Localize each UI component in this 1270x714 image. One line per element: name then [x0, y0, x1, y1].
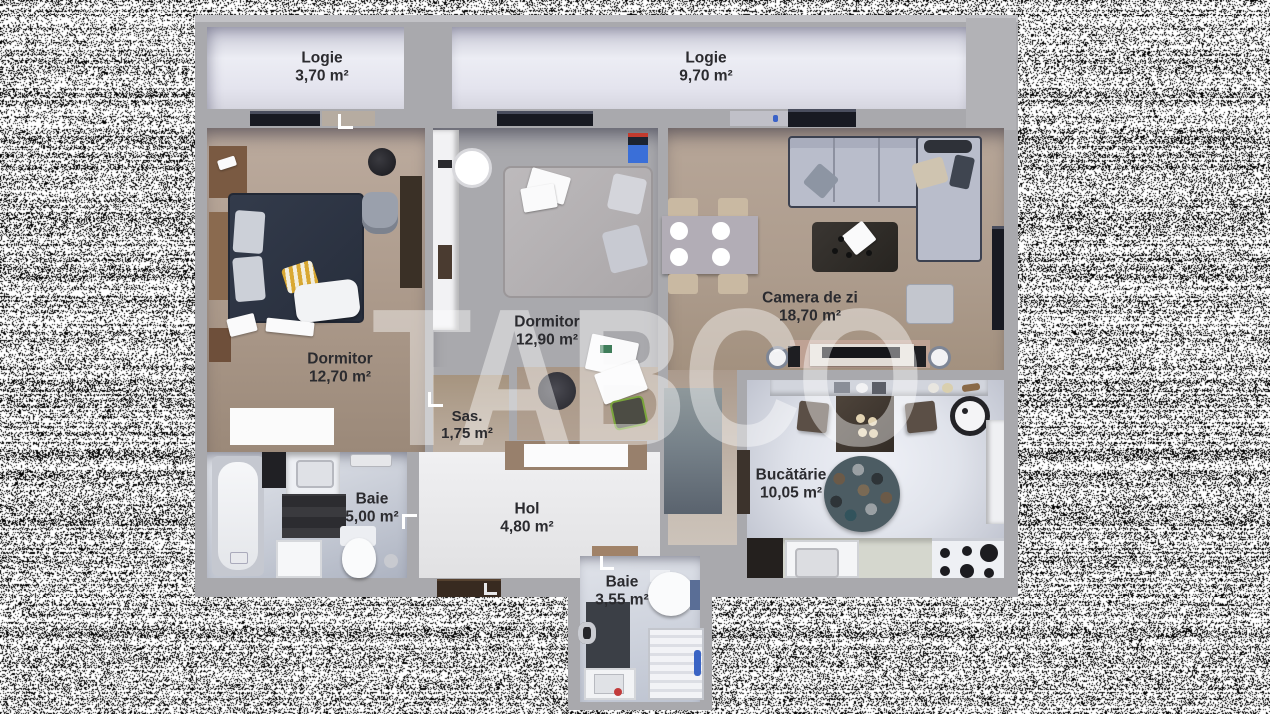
door-swing-icon: [600, 556, 614, 570]
window-camera-right: [992, 226, 1004, 330]
room-label-baie-mica: Baie 3,55 m²: [595, 573, 648, 608]
room-area: 12,90 m²: [514, 331, 579, 349]
mugs: [856, 414, 865, 423]
room-label-camera-de-zi: Camera de zi 18,70 m²: [762, 289, 858, 324]
room-area: 4,80 m²: [500, 518, 553, 536]
room-label-logie-right: Logie 9,70 m²: [679, 49, 732, 84]
bath-accent-item: [614, 688, 622, 696]
top-right-block: [966, 18, 1016, 130]
counter-item: [928, 383, 939, 393]
tall-cabinet: [737, 450, 750, 514]
pillow: [233, 210, 266, 254]
room-label-baie-mare: Baie 5,00 m²: [345, 490, 398, 525]
room-name: Hol: [500, 500, 553, 518]
tile-mat: [282, 494, 346, 538]
room-area: 3,70 m²: [295, 67, 348, 85]
dining-chair: [668, 198, 698, 218]
window-camera-top: [788, 109, 856, 127]
room-area: 3,55 m²: [595, 591, 648, 609]
room-name: Dormitor: [307, 350, 372, 368]
room-area: 10,05 m²: [756, 484, 827, 502]
desk: [209, 146, 247, 198]
window-dormitor-mid: [497, 111, 593, 126]
bathtub-faucet: [230, 552, 248, 564]
stove-burners: [940, 548, 950, 558]
counter-item: [856, 383, 868, 393]
wall-clock: [950, 396, 990, 436]
sofa-main: [788, 136, 930, 208]
door-swing-icon: [338, 114, 353, 129]
room-name: Baie: [345, 490, 398, 508]
wardrobe-item: [438, 245, 452, 279]
tv: [628, 133, 648, 163]
window-dormitor-left: [250, 111, 320, 126]
room-label-sas: Sas. 1,75 m²: [441, 408, 493, 442]
waste-bin: [384, 554, 398, 568]
pouf: [538, 372, 576, 410]
toilet-fixture: [690, 580, 700, 610]
hol-closet-door: [524, 444, 628, 467]
sofa-seam: [878, 138, 880, 202]
vanity-basin: [296, 460, 334, 488]
kitchen-table: [836, 396, 894, 452]
sink-basin: [795, 548, 839, 578]
door-swing-icon: [402, 514, 417, 529]
room-name: Baie: [595, 573, 648, 591]
chair: [362, 192, 398, 234]
sofa-headrest: [924, 140, 972, 153]
shower-glass-panel: [262, 452, 286, 488]
room-label-bucatarie: Bucătărie 10,05 m²: [756, 466, 827, 501]
room-name: Camera de zi: [762, 289, 858, 307]
cups: [832, 248, 838, 254]
room-name: Sas.: [441, 408, 493, 425]
speaker: [928, 346, 951, 369]
towel-rail: [350, 454, 392, 467]
white-rug: [230, 408, 334, 445]
round-fixture: [578, 622, 596, 644]
dining-chair: [718, 198, 748, 218]
room-area: 18,70 m²: [762, 307, 858, 325]
magazine-detail: [600, 345, 612, 353]
pillow: [232, 256, 266, 302]
round-mosaic-rug: [824, 456, 900, 532]
shelf-unit: [209, 328, 231, 362]
right-cabinet: [986, 420, 1004, 524]
top-wall-face: [195, 15, 1018, 22]
kitchen-chair: [797, 401, 830, 434]
room-area: 9,70 m²: [679, 67, 732, 85]
room-name: Logie: [679, 49, 732, 67]
tv-screen: [822, 347, 900, 358]
kitchen-chair: [905, 401, 938, 434]
side-desk: [400, 176, 422, 288]
room-label-dormitor-left: Dormitor 12,70 m²: [307, 350, 372, 385]
bath-cabinet: [276, 540, 322, 578]
room-area: 1,75 m²: [441, 425, 493, 442]
ottoman: [906, 284, 954, 324]
place-settings: [670, 222, 688, 240]
room-area: 5,00 m²: [345, 508, 398, 526]
door-opening-camera: [730, 111, 788, 126]
runner-rug: [664, 388, 722, 514]
clock-center: [962, 408, 968, 414]
toilet: [648, 572, 694, 616]
door-swing-icon: [428, 392, 443, 407]
dining-chair: [668, 274, 698, 294]
room-label-logie-left: Logie 3,70 m²: [295, 49, 348, 84]
room-name: Dormitor: [514, 313, 579, 331]
dark-cabinet: [747, 538, 783, 578]
dining-chair: [718, 274, 748, 294]
round-table: [452, 148, 492, 188]
room-name: Logie: [295, 49, 348, 67]
wardrobe-item: [438, 160, 452, 168]
room-label-dormitor-mid: Dormitor 12,90 m²: [514, 313, 579, 348]
speaker: [766, 346, 789, 369]
blanket: [293, 278, 361, 324]
room-label-hol: Hol 4,80 m²: [500, 500, 553, 535]
counter-item: [872, 382, 886, 394]
room-name: Bucătărie: [756, 466, 827, 484]
door-handle-icon: [773, 115, 778, 122]
counter-item: [834, 382, 850, 393]
floor-lamp: [368, 148, 396, 176]
sofa-chaise: [916, 136, 982, 262]
entrance-door-handle-icon: [484, 583, 497, 595]
floor-plan-screenshot: { "watermark": { "text": "TABCO" }, "roo…: [0, 0, 1270, 714]
sofa-seam: [833, 138, 835, 202]
stove: [932, 538, 1004, 578]
room-area: 12,70 m²: [307, 368, 372, 386]
speaker-tower: [914, 346, 926, 367]
speaker-tower: [788, 346, 800, 367]
shower-handle: [694, 650, 701, 676]
bath-door: [592, 546, 638, 556]
toilet: [342, 538, 376, 578]
